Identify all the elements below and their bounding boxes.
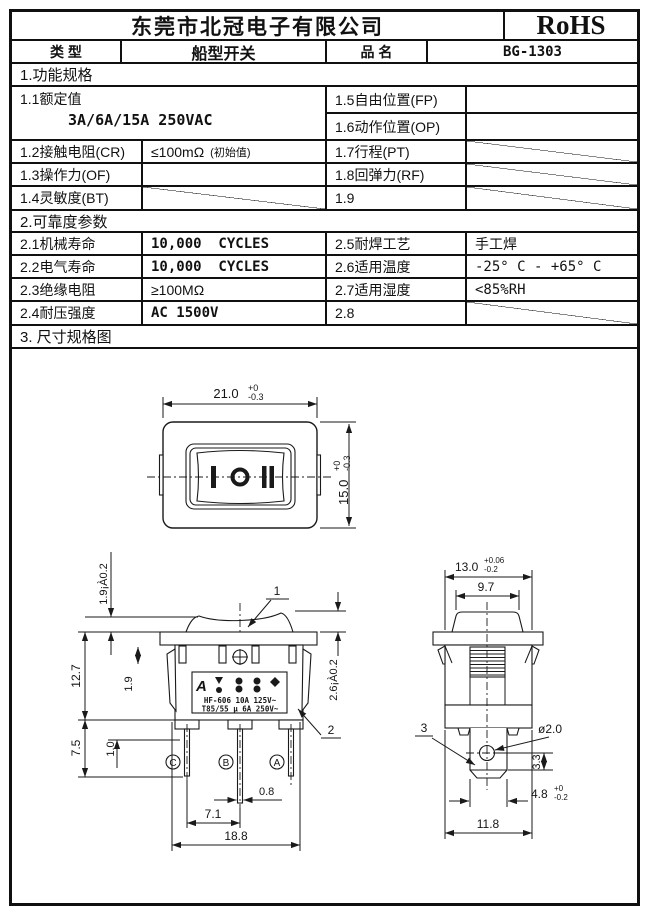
- dim-75-text: 7.5: [69, 739, 83, 756]
- right-clip-icon: [317, 455, 321, 495]
- dim-127-text: 12.7: [69, 664, 83, 688]
- dim-13-text: 13.0: [455, 560, 479, 574]
- rocker-knob: [452, 612, 523, 632]
- dimension-drawings: 21.0 +0 -0.3 15.0 +0 -0.3: [0, 0, 650, 919]
- dim-48-tol-plus: +0: [554, 784, 564, 793]
- dim-97-text: 9.7: [478, 580, 495, 594]
- dim-33-text: 3.3: [531, 754, 543, 769]
- dim-pin-height-75: 7.5: [69, 720, 183, 777]
- rating-line2: T85/55 µ 6A 250V~: [202, 705, 279, 714]
- dim-height-15: 15.0 +0 -0.3: [320, 422, 356, 528]
- dim-188-text: 18.8: [224, 829, 248, 843]
- dim-19b-text: 1.9: [123, 676, 135, 691]
- snap-clip-icon: [302, 649, 311, 711]
- vent-slot: [219, 646, 226, 663]
- dim-13-tol-plus: +0.06: [484, 556, 505, 565]
- dim-width-21: 21.0 +0 -0.3: [163, 383, 317, 418]
- dim-slot-19: 1.9: [123, 647, 138, 692]
- dim-pin-pitch-71: 7.1: [187, 780, 240, 828]
- callout-1-text: 1: [274, 584, 281, 598]
- dim-118-text: 11.8: [477, 817, 500, 831]
- dim-26-text: 2.6¡À0.2: [327, 659, 340, 701]
- cert-mark-icon: [216, 687, 222, 693]
- dim-15-tol-plus: +0: [332, 461, 342, 471]
- brand-logo: A: [195, 678, 207, 695]
- snap-clip-icon: [438, 646, 445, 664]
- base-foot: [507, 728, 519, 735]
- base-foot: [458, 728, 470, 735]
- dim-pin-width-08: 0.8: [214, 786, 282, 800]
- rocker-profile: [186, 613, 293, 632]
- callout-2-text: 2: [328, 723, 335, 737]
- dim-48-text: 4.8: [531, 787, 548, 801]
- dim-08-text: 0.8: [259, 786, 274, 798]
- svg-text:C: C: [169, 758, 176, 769]
- svg-text:A: A: [274, 758, 281, 769]
- snap-clip-icon: [167, 649, 176, 711]
- dim-hole-text: ø2.0: [538, 722, 562, 736]
- vent-slot: [179, 646, 186, 663]
- mounting-flange: [160, 632, 317, 645]
- pin-label-a: A: [270, 755, 284, 769]
- dim-71-text: 7.1: [205, 807, 222, 821]
- dim-13-tol-minus: -0.2: [484, 565, 498, 574]
- mounting-flange: [433, 632, 543, 645]
- pin-label-c: C: [166, 755, 180, 769]
- dim-19-tol-text: 1.9¡À0.2: [97, 563, 110, 605]
- dim-body-height-127: 12.7: [69, 632, 175, 720]
- dim-latch-48: 4.8 +0 -0.2: [449, 779, 568, 807]
- front-view-drawing: 21.0 +0 -0.3 15.0 +0 -0.3: [147, 383, 356, 528]
- vent-slot: [289, 646, 296, 663]
- cert-mark-icon: [236, 686, 243, 693]
- left-clip-icon: [160, 455, 164, 495]
- dim-body-width-188: 18.8: [172, 722, 300, 851]
- svg-text:B: B: [223, 758, 230, 769]
- datasheet-page: 东莞市北冠电子有限公司 RoHS 类 型 船型开关 品 名 BG-1303 1.…: [0, 0, 650, 919]
- vent-slot: [252, 646, 259, 663]
- ribbed-grip: [470, 647, 505, 677]
- snap-clip-icon: [532, 646, 539, 664]
- callout-3-text: 3: [421, 721, 428, 735]
- callout-2: 2: [298, 709, 341, 738]
- dim-48-tol-minus: -0.2: [554, 793, 568, 802]
- pin-label-b: B: [219, 755, 233, 769]
- rating-label-plate: A HF-606 10A 125V~ T85/55 µ 6A 250V~: [192, 672, 287, 714]
- cert-mark-icon: [254, 686, 261, 693]
- dim-15-tol-minus: -0.3: [342, 455, 352, 471]
- cert-mark-icon: [254, 678, 261, 685]
- dim-21-text: 21.0: [213, 386, 238, 401]
- housing-base: [445, 705, 532, 728]
- dim-15-text: 15.0: [336, 480, 351, 505]
- end-view-drawing: 13.0 +0.06 -0.2 9.7 ø2.0 3.3: [415, 556, 568, 839]
- cert-mark-icon: [236, 678, 243, 685]
- dim-10-text: 1.0: [105, 741, 117, 756]
- dim-21-tol-minus: -0.3: [248, 392, 264, 402]
- side-view-drawing: A HF-606 10A 125V~ T85/55 µ 6A 250V~: [69, 552, 346, 851]
- dim-knob-97: 9.7: [456, 580, 519, 610]
